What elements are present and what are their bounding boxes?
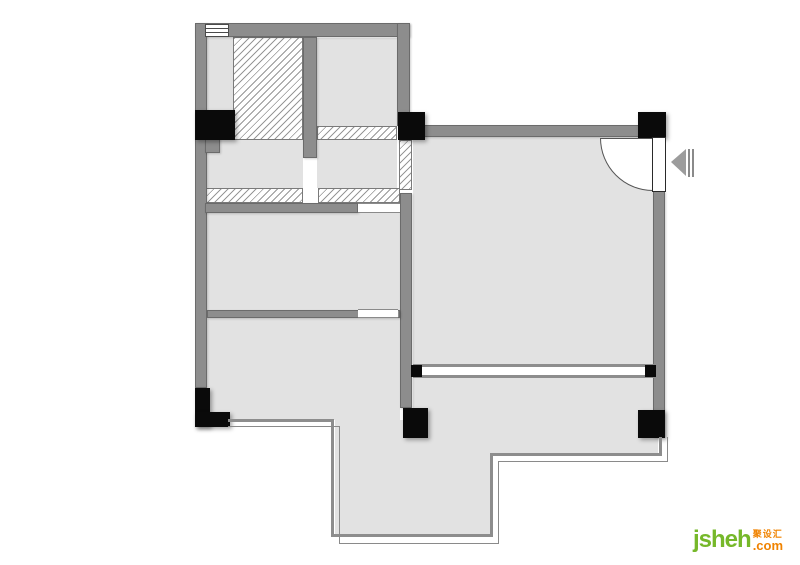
hatched-wall-large: [233, 37, 303, 140]
terrace-edge-step-horizontal: [490, 453, 662, 456]
window-opening-middle: [358, 309, 398, 318]
terrace-edge-right-stub: [659, 437, 662, 454]
entrance-arrow-line-1: [688, 149, 690, 177]
entrance-arrow-line-2: [692, 149, 694, 177]
terrace-edge-top: [228, 419, 334, 422]
door-leaf: [652, 137, 666, 192]
wall-step-left: [205, 138, 220, 153]
terrace-edge-step-vertical: [490, 453, 493, 537]
hatched-wall-vertical: [399, 140, 412, 190]
wall-living-room-top: [423, 125, 640, 137]
terrace-outline-left: [339, 426, 340, 544]
wall-horizontal-upper: [205, 203, 358, 213]
column-bottom-left-foot: [195, 412, 230, 427]
window-opening-upper: [358, 203, 400, 213]
column-top-middle: [398, 112, 425, 140]
logo-brand-text: jsheh: [693, 528, 751, 552]
entrance-arrow-icon: [671, 149, 686, 176]
balcony-opening-right-cap: [645, 365, 656, 377]
terrace-outline-bottom: [339, 543, 499, 544]
hatched-wall-band-upper: [317, 126, 397, 140]
column-top-right: [638, 112, 666, 138]
wall-right-exterior: [653, 191, 665, 437]
wall-top-block-right: [397, 23, 410, 126]
floor-plan-canvas: jsheh 聚设汇 .com: [0, 0, 800, 565]
hatched-wall-band-left: [205, 188, 303, 203]
terrace-outline-step-vertical: [498, 461, 499, 544]
terrace-outline-top: [228, 426, 340, 427]
balcony-opening-left-cap: [411, 365, 422, 377]
floor-top-middle-room: [317, 38, 397, 188]
hatched-wall-band-right: [318, 188, 400, 203]
terrace-edge-left: [331, 419, 334, 537]
terrace-edge-bottom: [331, 534, 493, 537]
window-icon-top-left: [205, 24, 229, 37]
floor-terrace-right: [413, 377, 658, 453]
terrace-outline-right: [667, 437, 668, 462]
wall-interior-vertical-top: [303, 37, 317, 158]
logo-stack: 聚设汇 .com: [753, 530, 783, 552]
column-bottom-middle: [403, 408, 428, 438]
logo-domain-suffix: .com: [753, 539, 783, 552]
terrace-outline-step-horizontal: [498, 461, 668, 462]
balcony-opening-bottom-line: [413, 375, 655, 378]
column-bottom-right: [638, 410, 665, 438]
balcony-opening-gap: [413, 367, 655, 375]
site-logo: jsheh 聚设汇 .com: [693, 528, 783, 552]
column-top-left: [195, 110, 235, 140]
